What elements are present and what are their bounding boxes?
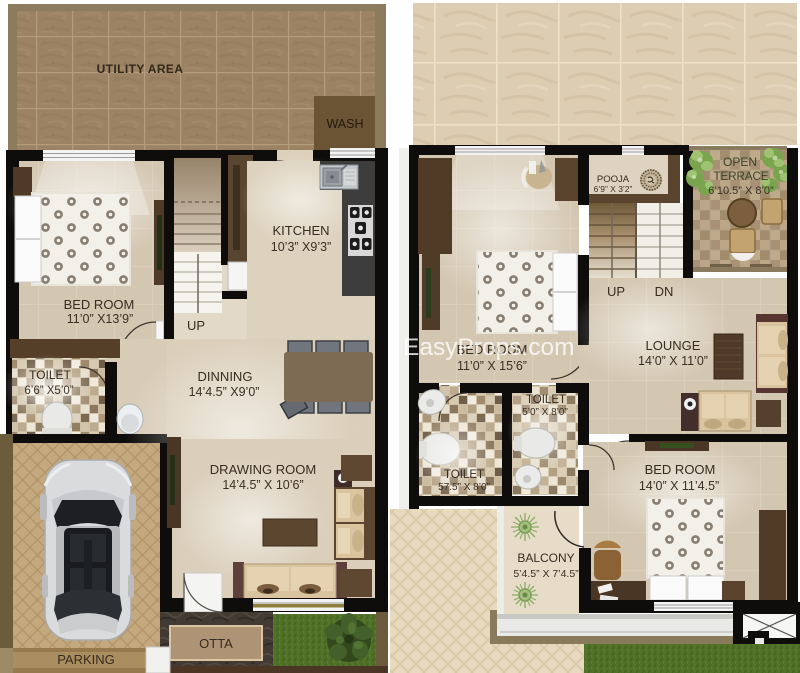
svg-text:DRAWING ROOM: DRAWING ROOM	[210, 462, 316, 477]
svg-text:TOILET: TOILET	[29, 368, 71, 382]
svg-text:DN: DN	[655, 284, 674, 299]
svg-text:10’3” X9’3”: 10’3” X9’3”	[271, 240, 331, 254]
svg-text:UP: UP	[187, 318, 205, 333]
svg-text:TOILET: TOILET	[526, 394, 566, 406]
svg-text:5’0” X 8’0”: 5’0” X 8’0”	[522, 407, 568, 418]
svg-text:OTTA: OTTA	[199, 636, 233, 651]
svg-text:UP: UP	[607, 284, 625, 299]
svg-text:6’6” X5’0”: 6’6” X5’0”	[24, 385, 73, 397]
svg-text:BED ROOM: BED ROOM	[64, 297, 135, 312]
svg-text:TOILET: TOILET	[444, 469, 484, 481]
svg-text:57.5” X 8’0”: 57.5” X 8’0”	[438, 482, 490, 493]
svg-text:WASH: WASH	[326, 117, 363, 131]
svg-text:LOUNGE: LOUNGE	[646, 338, 701, 353]
svg-text:BED ROOM: BED ROOM	[645, 462, 716, 477]
svg-text:6’10.5” X 8’0”: 6’10.5” X 8’0”	[708, 185, 774, 197]
svg-text:BALCONY: BALCONY	[517, 551, 574, 565]
svg-text:14’4.5” X9’0”: 14’4.5” X9’0”	[189, 385, 260, 399]
svg-text:PARKING: PARKING	[57, 652, 115, 667]
svg-text:UTILITY AREA: UTILITY AREA	[97, 62, 184, 76]
svg-text:TERRACE: TERRACE	[714, 171, 769, 183]
svg-text:11’0” X13’9”: 11’0” X13’9”	[67, 312, 133, 326]
svg-text:DINNING: DINNING	[198, 369, 253, 384]
svg-text:EasyProps.com: EasyProps.com	[403, 334, 575, 361]
svg-text:6’9” X 3’2”: 6’9” X 3’2”	[594, 184, 633, 194]
svg-text:KITCHEN: KITCHEN	[272, 223, 329, 238]
svg-text:11’0” X 15’6”: 11’0” X 15’6”	[457, 359, 527, 373]
svg-text:OPEN: OPEN	[723, 155, 757, 169]
svg-text:14’0” X 11’4.5”: 14’0” X 11’4.5”	[639, 479, 719, 493]
svg-text:5’4.5” X 7’4.5”: 5’4.5” X 7’4.5”	[513, 568, 579, 580]
svg-text:14’4.5” X 10’6”: 14’4.5” X 10’6”	[222, 478, 303, 492]
svg-text:14’0” X 11’0”: 14’0” X 11’0”	[638, 354, 708, 368]
